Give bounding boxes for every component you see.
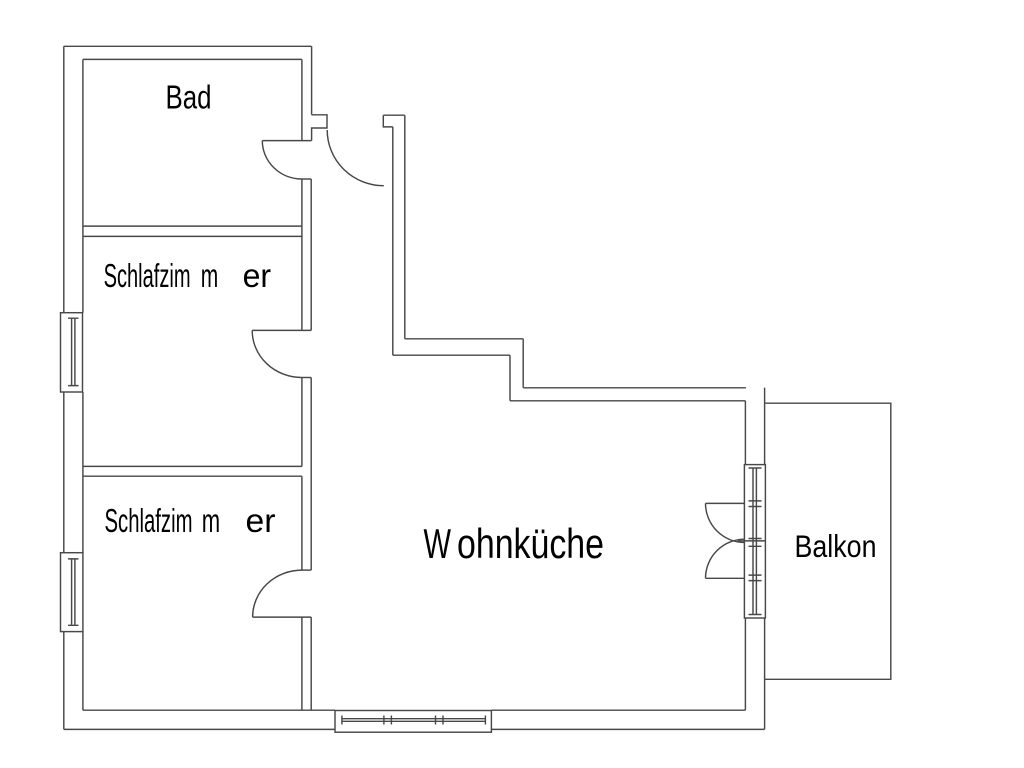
svg-text:Wohnküche: Wohnküche (424, 520, 605, 567)
svg-text:Schlafzimmer: Schlafzimmer (105, 502, 276, 539)
svg-text:Balkon: Balkon (795, 528, 877, 564)
svg-text:Schlafzimmer: Schlafzimmer (104, 257, 272, 294)
svg-text:Bad: Bad (166, 79, 212, 116)
